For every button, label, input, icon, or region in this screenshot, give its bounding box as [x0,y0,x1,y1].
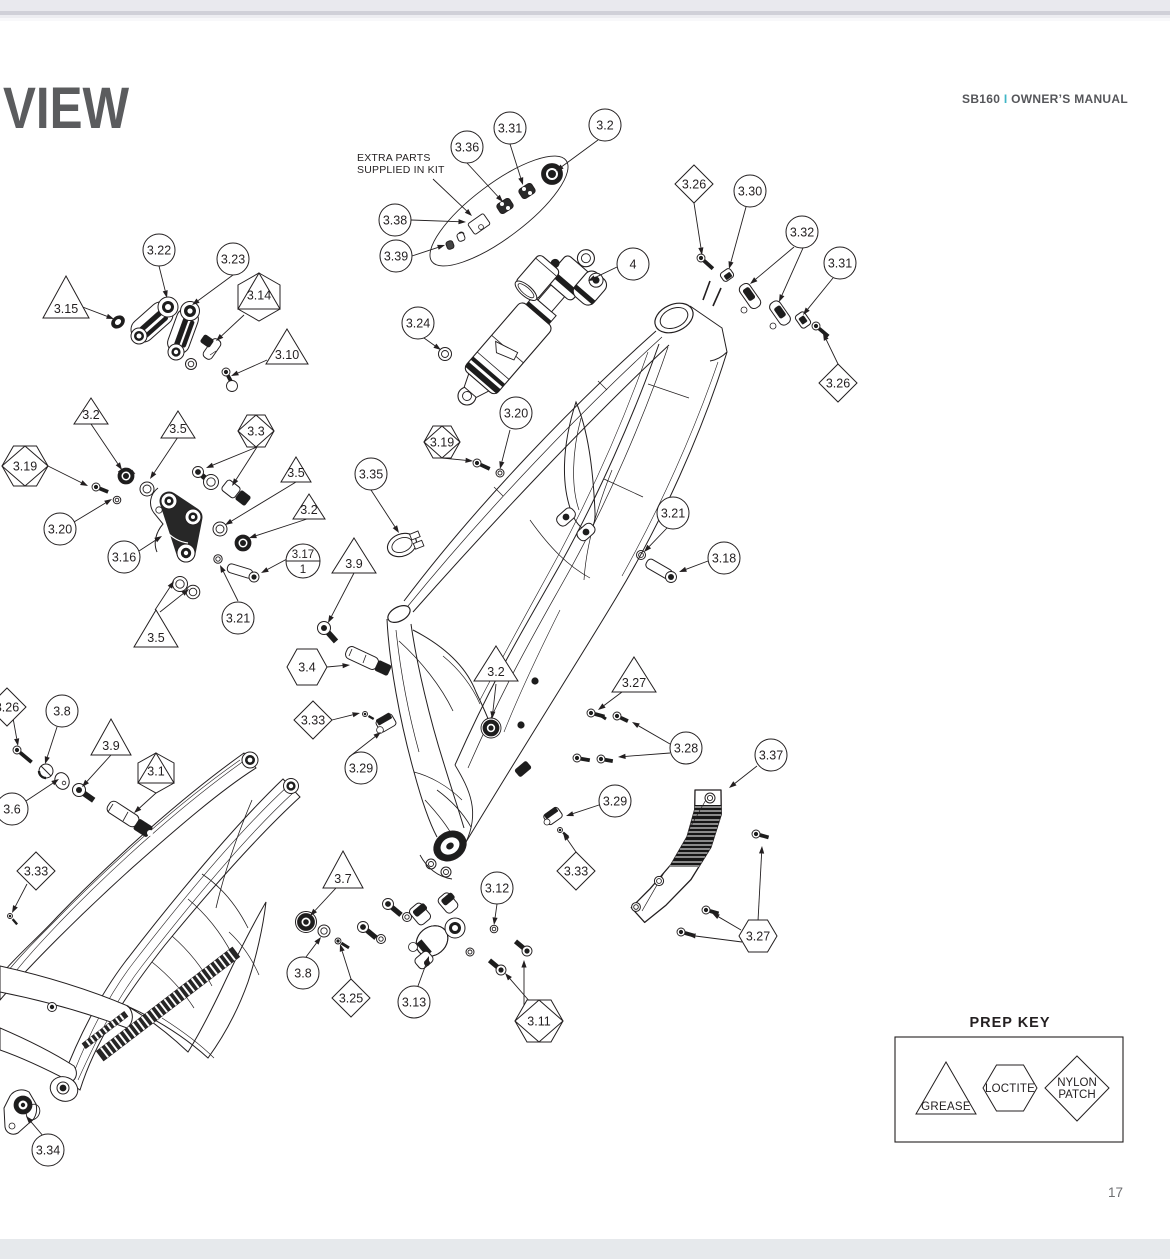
svg-text:3.18: 3.18 [712,552,736,566]
svg-text:3.1: 3.1 [147,765,164,779]
svg-text:1: 1 [300,564,306,576]
svg-text:3.12: 3.12 [485,882,509,896]
svg-text:3.31: 3.31 [498,122,522,136]
svg-text:3.36: 3.36 [455,141,479,155]
svg-text:3.10: 3.10 [275,348,299,362]
svg-text:3.34: 3.34 [36,1144,60,1158]
svg-text:NYLON: NYLON [1057,1077,1097,1089]
svg-text:3.11: 3.11 [527,1015,550,1029]
svg-text:3.26: 3.26 [826,377,850,391]
svg-text:3.7: 3.7 [334,872,351,886]
svg-text:3.9: 3.9 [345,557,362,571]
svg-text:3.8: 3.8 [294,967,311,981]
svg-text:SB160 I OWNER’S MANUAL: SB160 I OWNER’S MANUAL [962,92,1128,106]
svg-text:3.5: 3.5 [169,422,186,436]
svg-text:3.3: 3.3 [247,425,264,439]
svg-text:3.21: 3.21 [661,507,685,521]
svg-text:3.27: 3.27 [622,676,646,690]
svg-text:3.16: 3.16 [112,551,136,565]
svg-text:3.20: 3.20 [504,407,528,421]
svg-text:EXTRA PARTS: EXTRA PARTS [357,152,431,164]
svg-text:3.21: 3.21 [226,612,250,626]
svg-text:3.15: 3.15 [54,302,78,316]
svg-text:VIEW: VIEW [3,76,129,141]
svg-text:3.37: 3.37 [759,749,783,763]
svg-text:3.19: 3.19 [13,460,37,474]
svg-text:3.39: 3.39 [384,250,408,264]
svg-text:3.14: 3.14 [247,289,271,303]
svg-text:3.13: 3.13 [402,996,426,1010]
svg-text:3.5: 3.5 [147,631,164,645]
svg-text:SUPPLIED IN KIT: SUPPLIED IN KIT [357,164,445,176]
svg-text:3.2: 3.2 [300,503,317,517]
svg-text:3.23: 3.23 [221,253,245,267]
svg-text:3.2: 3.2 [82,408,99,422]
svg-text:3.30: 3.30 [738,185,762,199]
svg-text:3.19: 3.19 [430,436,454,450]
svg-text:GREASE: GREASE [921,1101,971,1113]
svg-text:3.24: 3.24 [406,317,430,331]
svg-text:3.32: 3.32 [790,226,814,240]
svg-text:3.26: 3.26 [0,701,19,715]
svg-text:3.8: 3.8 [53,705,70,719]
svg-text:LOCTITE: LOCTITE [985,1083,1035,1095]
svg-text:3.2: 3.2 [596,119,613,133]
svg-text:3.4: 3.4 [298,661,315,675]
svg-text:3.28: 3.28 [674,742,698,756]
svg-text:4: 4 [630,258,637,272]
svg-text:3.25: 3.25 [339,992,363,1006]
svg-text:3.27: 3.27 [746,930,770,944]
svg-text:3.33: 3.33 [301,714,325,728]
svg-text:3.22: 3.22 [147,244,171,258]
svg-text:3.33: 3.33 [564,865,588,879]
svg-text:17: 17 [1108,1185,1123,1200]
svg-text:3.26: 3.26 [682,178,706,192]
svg-text:3.35: 3.35 [359,468,383,482]
svg-text:3.29: 3.29 [349,762,373,776]
svg-text:3.33: 3.33 [24,865,48,879]
svg-text:3.31: 3.31 [828,257,852,271]
svg-text:3.5: 3.5 [287,466,304,480]
svg-text:3.17: 3.17 [292,549,314,561]
svg-text:3.2: 3.2 [487,665,504,679]
svg-text:3.38: 3.38 [383,214,407,228]
svg-text:3.6: 3.6 [3,803,20,817]
svg-text:PREP KEY: PREP KEY [969,1015,1050,1031]
svg-text:3.29: 3.29 [603,795,627,809]
svg-text:3.20: 3.20 [48,523,72,537]
svg-text:3.9: 3.9 [102,739,119,753]
svg-text:PATCH: PATCH [1058,1089,1095,1101]
